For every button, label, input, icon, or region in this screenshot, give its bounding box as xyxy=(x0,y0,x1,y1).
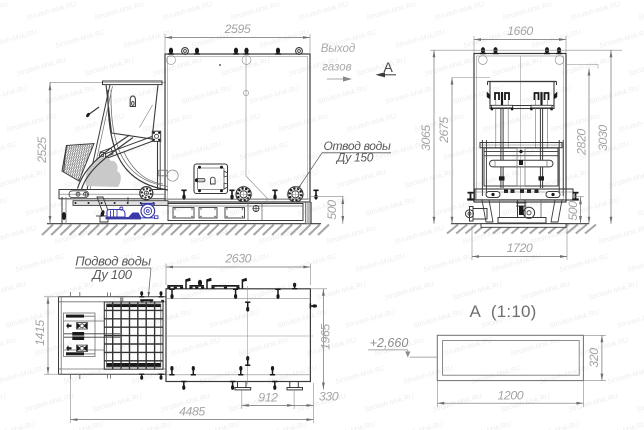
svg-text:3065: 3065 xyxy=(419,125,433,151)
svg-text:330: 330 xyxy=(319,390,339,404)
svg-text:газов: газов xyxy=(322,62,351,74)
svg-text:2675: 2675 xyxy=(437,117,451,144)
svg-text:1415: 1415 xyxy=(33,320,47,346)
svg-text:2630: 2630 xyxy=(224,252,251,266)
svg-text:1660: 1660 xyxy=(507,24,533,38)
svg-text:Ду 100: Ду 100 xyxy=(90,267,132,282)
svg-text:1200: 1200 xyxy=(497,389,523,403)
svg-text:500: 500 xyxy=(566,201,580,221)
svg-text:3030: 3030 xyxy=(596,125,610,151)
svg-text:А: А xyxy=(384,59,394,75)
svg-text:1965: 1965 xyxy=(319,324,333,350)
svg-text:Выход: Выход xyxy=(321,43,356,55)
svg-text:320: 320 xyxy=(587,348,601,368)
svg-text:4485: 4485 xyxy=(179,405,205,419)
svg-text:2595: 2595 xyxy=(224,22,251,36)
svg-text:2820: 2820 xyxy=(575,129,589,156)
svg-text:1720: 1720 xyxy=(507,241,533,255)
svg-text:+2,660: +2,660 xyxy=(370,336,409,350)
svg-text:500: 500 xyxy=(325,200,339,220)
svg-text:912: 912 xyxy=(258,391,278,405)
svg-text:А (1:10): А (1:10) xyxy=(470,302,537,321)
svg-text:2525: 2525 xyxy=(35,137,49,164)
